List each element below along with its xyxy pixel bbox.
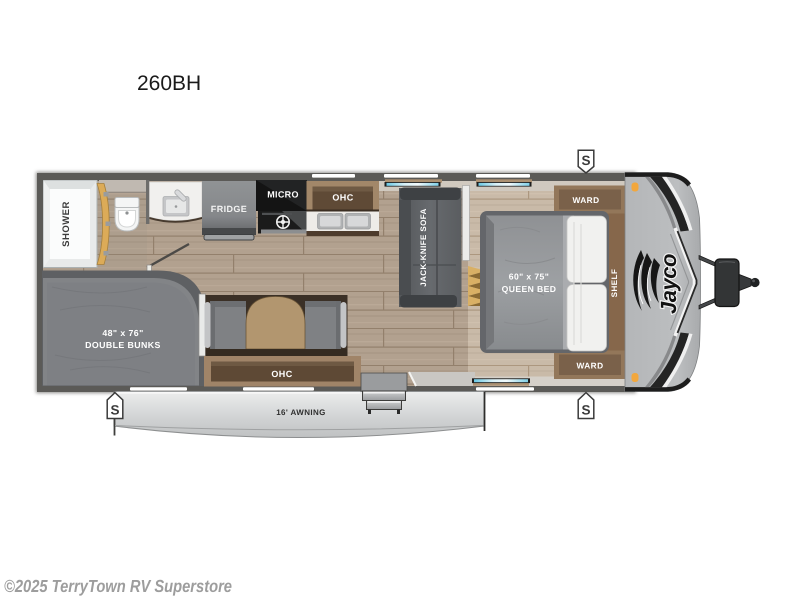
svg-text:MICRO: MICRO — [267, 190, 299, 200]
svg-text:DOUBLE BUNKS: DOUBLE BUNKS — [85, 340, 161, 350]
svg-text:48" x 76": 48" x 76" — [102, 328, 143, 338]
svg-text:WARD: WARD — [573, 195, 600, 205]
svg-text:OHC: OHC — [332, 193, 353, 203]
svg-text:S: S — [581, 153, 590, 168]
svg-text:FRIDGE: FRIDGE — [211, 204, 247, 214]
svg-text:WARD: WARD — [577, 361, 604, 371]
svg-text:60" x 75": 60" x 75" — [509, 272, 549, 282]
svg-text:S: S — [110, 403, 119, 418]
svg-text:260BH: 260BH — [137, 72, 201, 95]
svg-text:QUEEN BED: QUEEN BED — [502, 284, 557, 294]
svg-text:SHELF: SHELF — [610, 269, 619, 298]
svg-text:S: S — [581, 403, 590, 418]
svg-text:16' AWNING: 16' AWNING — [276, 408, 326, 417]
svg-text:Jayco: Jayco — [656, 254, 681, 314]
svg-text:SHOWER: SHOWER — [61, 201, 72, 247]
svg-text:JACK-KNIFE SOFA: JACK-KNIFE SOFA — [419, 208, 428, 286]
svg-text:OHC: OHC — [271, 369, 292, 379]
svg-text:©2025 TerryTown RV Superstore: ©2025 TerryTown RV Superstore — [4, 576, 232, 596]
